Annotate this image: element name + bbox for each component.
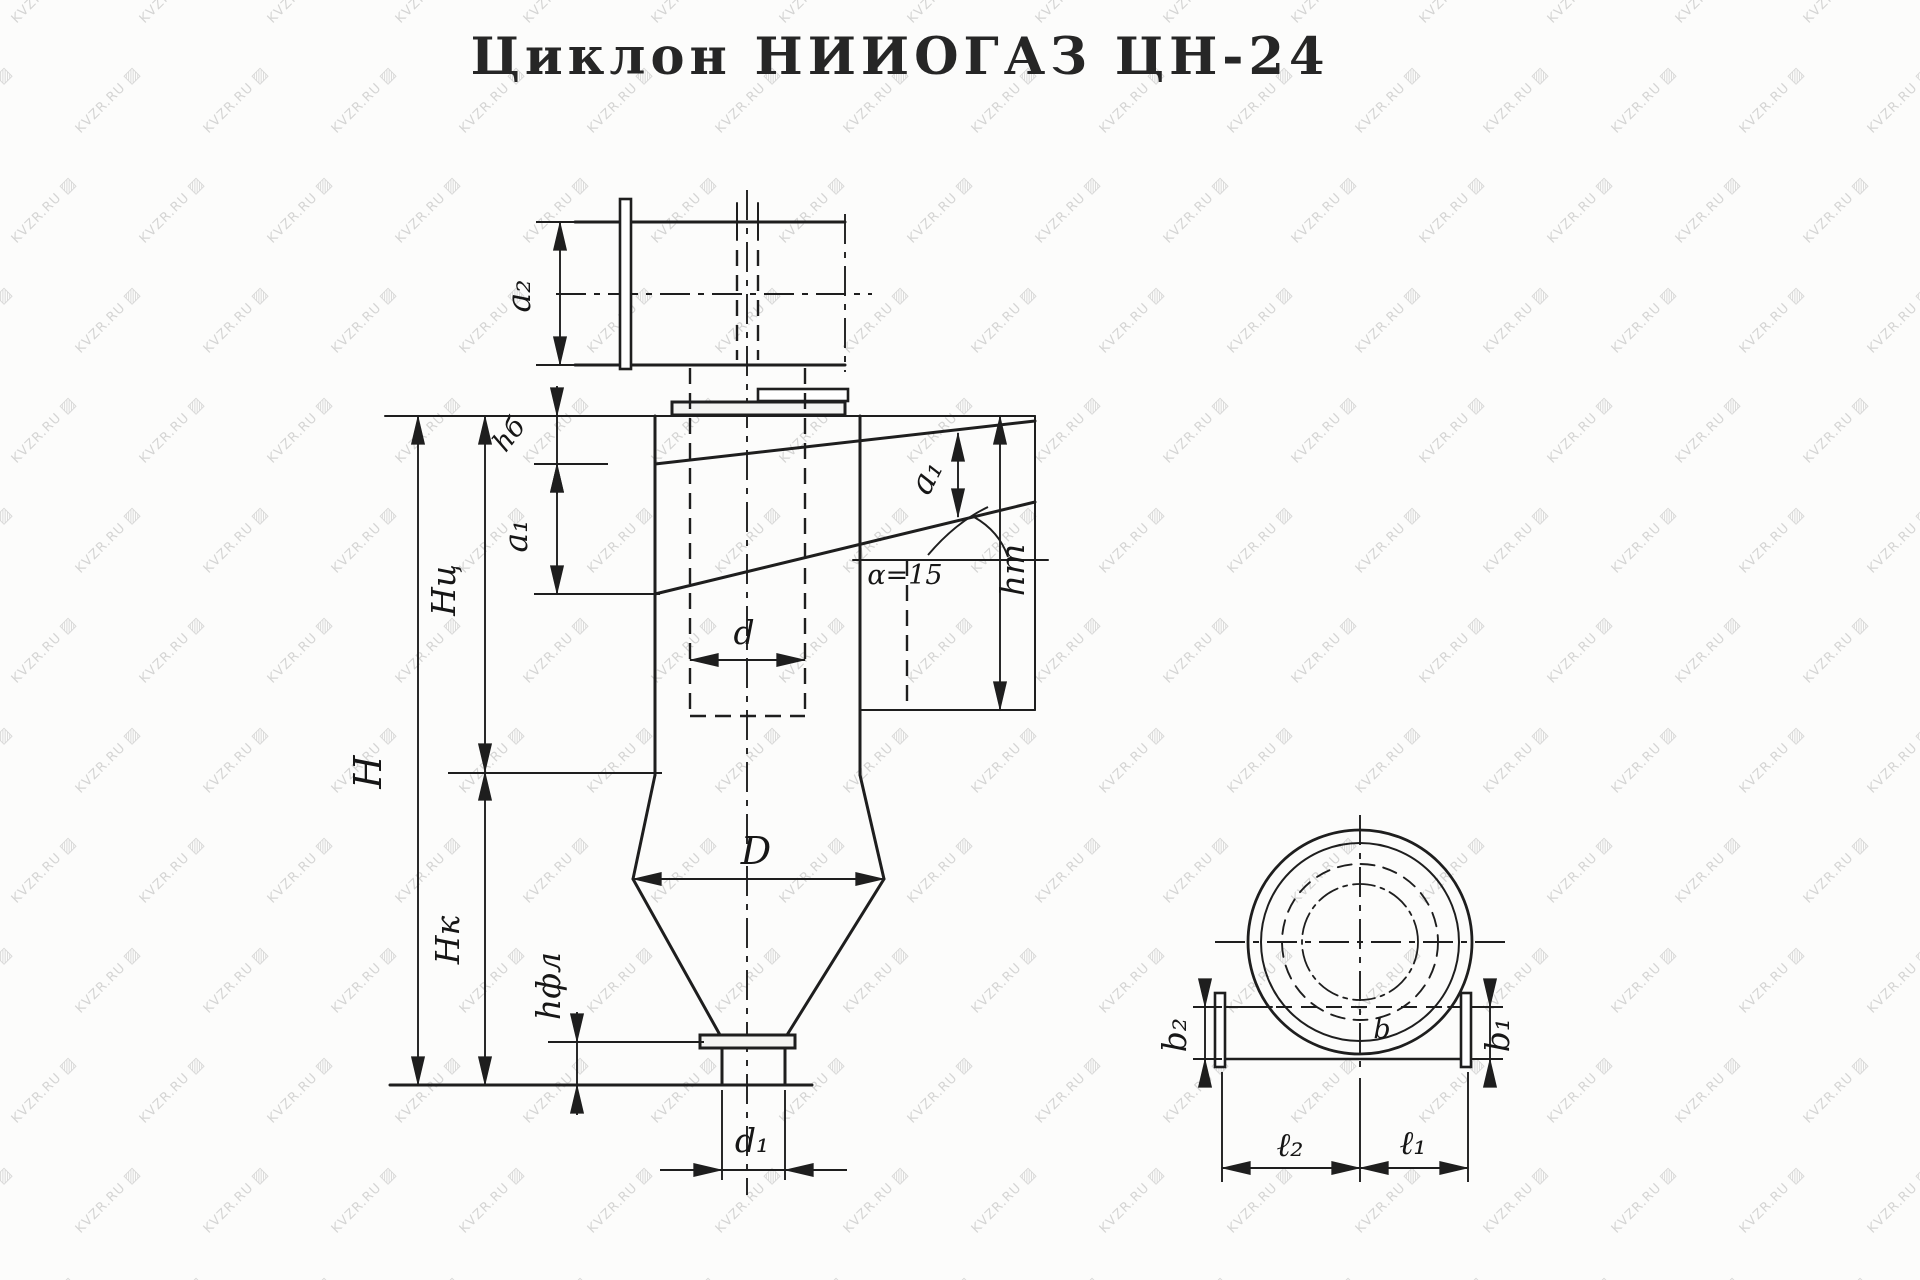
dim-label-b1: b₁ bbox=[1478, 1018, 1517, 1052]
plan-right-flange bbox=[1461, 993, 1471, 1067]
dust-outlet-pipe bbox=[722, 1048, 785, 1085]
dim-label-Hk: Hк bbox=[428, 915, 467, 965]
plan-view: b₂ b₁ b ℓ₂ ℓ₁ bbox=[1155, 815, 1517, 1182]
dim-label-a1-right: a₁ bbox=[901, 453, 951, 500]
dim-label-l1: ℓ₁ bbox=[1400, 1123, 1427, 1162]
top-outlet-duct bbox=[556, 199, 872, 372]
scanned-technical-drawing-page: KVZR.RU▨KVZR.RU▨KVZR.RU▨KVZR.RU▨KVZR.RU▨… bbox=[0, 0, 1920, 1280]
duct-flange-plate bbox=[620, 199, 631, 369]
inlet-bottom-edge bbox=[655, 502, 1035, 594]
dim-label-H: H bbox=[346, 755, 390, 790]
plan-inlet-duct bbox=[1215, 993, 1471, 1067]
plan-left-flange bbox=[1215, 993, 1225, 1067]
cone bbox=[633, 879, 884, 1035]
dim-label-ht: hт bbox=[993, 544, 1032, 597]
cyclone-technical-drawing: Циклон НИИОГАЗ ЦН-24 bbox=[0, 0, 1920, 1280]
dim-label-a1-left: a₁ bbox=[496, 520, 535, 553]
dim-label-d1: d₁ bbox=[735, 1121, 769, 1160]
front-view: a₂ hб a₁ Hц H Hк hфл d D d₁ a₁ α=15 hт bbox=[346, 190, 1048, 1195]
drawing-title: Циклон НИИОГАЗ ЦН-24 bbox=[471, 27, 1330, 87]
dim-label-b: b bbox=[1373, 1014, 1390, 1045]
dim-label-b2: b₂ bbox=[1155, 1018, 1194, 1052]
dim-label-d: d bbox=[733, 613, 754, 652]
dim-label-l2: ℓ₂ bbox=[1277, 1125, 1304, 1164]
dim-label-a2: a₂ bbox=[499, 280, 538, 313]
inlet-duct bbox=[655, 416, 1048, 710]
cyclone-body bbox=[633, 416, 884, 1085]
dim-label-hfl: hфл bbox=[529, 952, 568, 1020]
dust-outlet-flange bbox=[700, 1035, 795, 1048]
dim-label-Hc: Hц bbox=[424, 564, 463, 617]
dim-label-hb: hб bbox=[487, 411, 533, 457]
dim-label-D: D bbox=[740, 829, 771, 873]
top-flange bbox=[672, 389, 848, 415]
inlet-top-edge bbox=[655, 421, 1035, 464]
plan-dimensions bbox=[1193, 979, 1503, 1182]
angle-label: α=15 bbox=[867, 560, 942, 591]
